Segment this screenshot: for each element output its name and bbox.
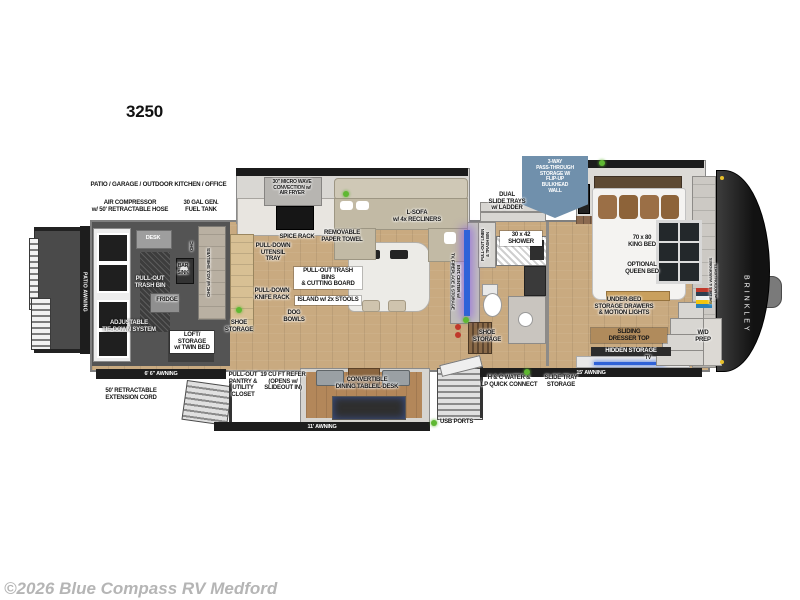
bed-pillow-2 — [619, 195, 638, 219]
floorplan-image[interactable]: 3250 ©2026 Blue Compass RV Medford PATIO… — [0, 0, 800, 600]
knife-rack-label: PULL-DOWN KNIFE RACK — [249, 288, 295, 301]
ohc-shelves-label: OHC w/ ADJ. SHELVES — [207, 234, 214, 312]
marker-light-bottom — [720, 360, 724, 364]
tv-label: TV — [640, 355, 656, 362]
vanity-sink — [518, 312, 533, 327]
shoe-storage-label-2: SHOE STORAGE — [470, 330, 504, 343]
patio-awning-label: PATIO AWNING — [81, 252, 88, 332]
led-dot-kitchen — [343, 191, 349, 197]
ext-cord-label: 50' RETRACTABLE EXTENSION CORD — [94, 388, 168, 401]
ramp-window-4 — [97, 330, 129, 358]
paper-towel-label: REMOVABLE PAPER TOWEL — [320, 230, 364, 243]
watermark: ©2026 Blue Compass RV Medford — [4, 579, 304, 598]
bed-pillow-1 — [598, 195, 617, 219]
model-number: 3250 — [126, 102, 186, 121]
led-dot-garage-wall — [236, 307, 242, 313]
pass-through-tray-2 — [480, 212, 546, 222]
bedroom-tv-strip — [594, 362, 664, 365]
dining-label: CONVERTIBLE DINING TABLE/L-DESK — [324, 377, 410, 390]
led-dot-ent — [463, 317, 469, 323]
queen-bed-label: OPTIONAL QUEEN BED — [612, 262, 672, 275]
refer-label: 19 CU FT REFER (OPENS w/ SLIDEOUT IN) — [258, 372, 308, 392]
trash-bin-label: PULL-OUT TRASH BIN — [124, 276, 176, 289]
king-bed-label: 70 x 80 KING BED — [614, 235, 670, 248]
loft-label: LOFT/ STORAGE w/ TWIN BED — [170, 331, 214, 353]
dual-slide-trays-label: DUAL SLIDE TRAYS w/ LADDER — [482, 192, 532, 212]
awning-15-label: 15' AWNING — [480, 370, 702, 377]
sofa-pillow-1 — [340, 201, 353, 210]
tv-fireplace-strip — [464, 230, 470, 316]
kitchen-slide-top-band — [236, 168, 468, 176]
sofa-pillow-2 — [356, 201, 369, 210]
brand-label: BRINKLEY — [742, 256, 749, 352]
air-compressor-label: AIR COMPRESSOR w/ 50' RETRACTABLE HOSE — [90, 200, 170, 213]
hc-water-label: H & C WATER & LP QUICK CONNECT — [480, 375, 538, 388]
led-dot-bedroom — [599, 160, 605, 166]
dog-bowls-label: DOG BOWLS — [278, 310, 310, 323]
shower-label: 30 x 42 SHOWER — [500, 231, 542, 246]
led-dot-awning — [524, 369, 530, 375]
dinette-desk-surface — [332, 396, 406, 420]
awning-11-label: 11' AWNING — [214, 424, 430, 431]
shoe-storage-label-1: SHOE STORAGE — [220, 320, 258, 333]
ent-center-label: ENT. CENTER w/ TV, FIREPLACE & STORAGE — [450, 238, 461, 324]
usb-legend-dot — [431, 420, 437, 426]
hidden-storage-label: HIDDEN STORAGE — [591, 347, 671, 356]
bath-bedroom-wall — [546, 222, 549, 366]
wardrobe-label: SHELVES & WARDROBES w/ MOTION LIGHTS — [708, 226, 718, 336]
fridge-label: FRIDGE — [150, 297, 184, 304]
patio-steps — [31, 298, 51, 350]
trash-bins-label: PULL-OUT TRASH BINS & CUTTING BOARD — [294, 267, 362, 289]
ramp-window-1 — [97, 233, 129, 263]
pass-through-callout-label: 3-WAY PASS-THROUGH STORAGE W/ FLIP-UP BU… — [522, 160, 588, 195]
dog-bowl-red-2 — [455, 332, 461, 338]
bar-sink-label: BAR SINK — [170, 263, 196, 276]
linen-label: PULL-OUT LINEN & TRASH BIN — [480, 224, 490, 266]
bed-pillow-4 — [661, 195, 679, 219]
usb-legend-label: USB PORTS — [440, 419, 480, 426]
placemat-2 — [390, 250, 408, 259]
sofa-back — [334, 178, 468, 200]
sofa-label: L-SOFA w/ 4x RECLINERS — [388, 210, 446, 223]
wd-prep-label: W/D PREP — [688, 330, 718, 343]
cooktop — [276, 206, 314, 230]
under-bed-label: UNDER-BED STORAGE DRAWERS & MOTION LIGHT… — [590, 297, 658, 317]
bed-pillow-3 — [640, 195, 659, 219]
tie-down-label: ADJUSTABLE TIE-DOWN SYSTEM — [100, 320, 158, 333]
spice-rack-label: SPICE RACK — [278, 234, 316, 241]
microwave-label: 30" MICRO WAVE CONVECTION w/ AIR FRYER — [263, 180, 321, 197]
dresser-label: SLIDING DRESSER TOP — [591, 328, 667, 343]
stool-2 — [388, 300, 406, 312]
bedroom-slide-top-band — [576, 160, 704, 168]
fuel-tank-label: 30 GAL GEN. FUEL TANK — [174, 200, 228, 213]
stool-1 — [362, 300, 380, 312]
dog-bowl-red-1 — [455, 324, 461, 330]
slide-tray-label: SLIDE TRAY STORAGE — [540, 375, 582, 388]
awning-6-6-label: 6' 6" AWNING — [96, 371, 226, 378]
island-label: ISLAND w/ 2x STOOLS — [295, 296, 361, 305]
toilet-bowl — [483, 293, 502, 317]
utensil-tray-label: PULL-DOWN UTENSIL TRAY — [250, 243, 296, 263]
ohc-label: OHC — [189, 238, 196, 254]
desk-label: DESK — [136, 235, 170, 242]
zone-label: PATIO / GARAGE / OUTDOOR KITCHEN / OFFIC… — [76, 182, 241, 189]
bath-mirror — [524, 266, 546, 296]
marker-light-top — [720, 176, 724, 180]
